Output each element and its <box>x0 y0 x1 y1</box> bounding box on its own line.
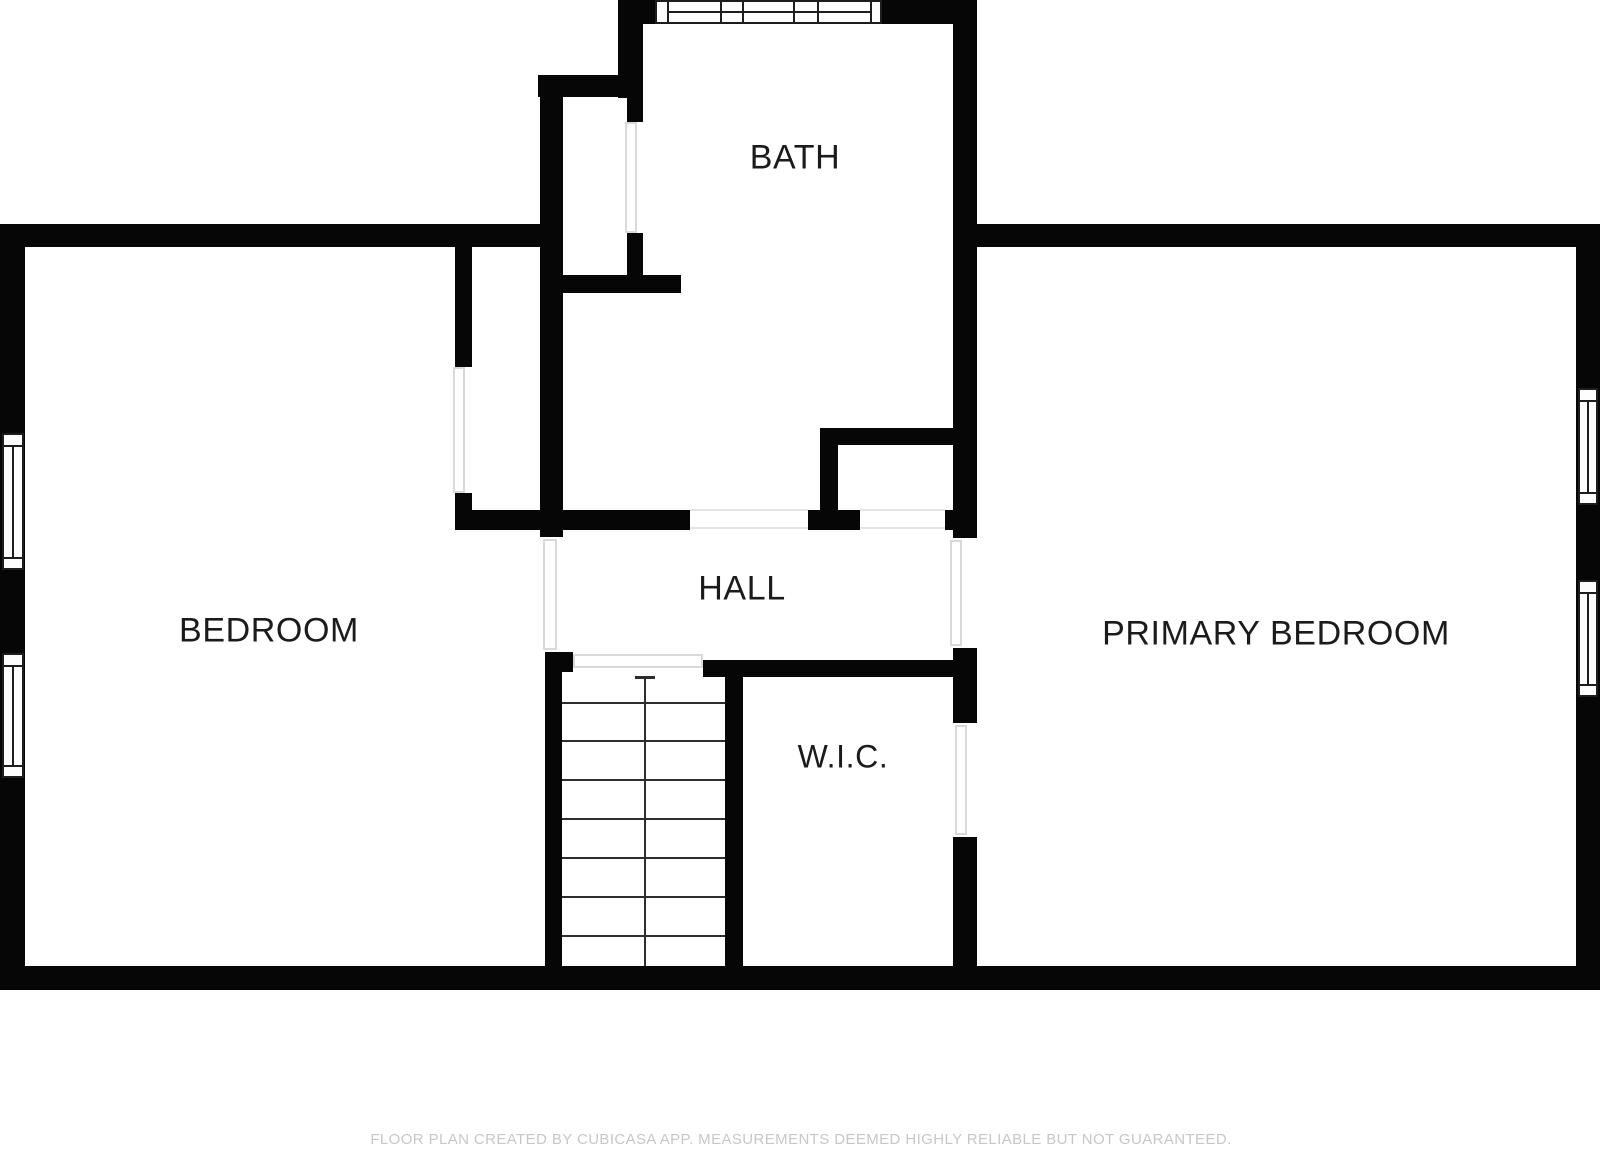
wall-segment <box>457 510 690 530</box>
hall-outline-line <box>690 509 808 511</box>
room-label-primary-bedroom: PRIMARY BEDROOM <box>1102 615 1450 654</box>
stair-center-line <box>644 677 646 966</box>
door-opening <box>950 540 962 646</box>
wall-segment <box>953 0 977 538</box>
room-label-hall: HALL <box>698 570 785 609</box>
wall-segment <box>0 966 1600 990</box>
wall-segment <box>545 652 562 966</box>
wall-segment <box>725 660 743 966</box>
door-opening <box>573 654 703 668</box>
door-opening <box>625 122 637 233</box>
door-opening <box>543 539 557 650</box>
wall-segment <box>953 837 977 988</box>
wall-segment <box>627 97 643 122</box>
wall-segment <box>808 510 860 530</box>
hall-outline-line <box>860 509 945 511</box>
window-center-line <box>1587 400 1589 492</box>
wall-segment <box>0 224 557 247</box>
wall-segment <box>540 75 563 537</box>
footer-disclaimer: FLOOR PLAN CREATED BY CUBICASA APP. MEAS… <box>370 1131 1231 1148</box>
room-label-bath: BATH <box>750 139 841 178</box>
wall-segment <box>545 275 681 293</box>
stair-entry-marker <box>635 676 655 679</box>
floorplan-canvas: BATH BEDROOM HALL PRIMARY BEDROOM W.I.C.… <box>0 0 1600 1152</box>
window-frame-line <box>4 765 22 767</box>
window-center-line <box>12 665 14 765</box>
door-opening <box>453 367 465 493</box>
wall-segment <box>838 428 955 445</box>
hall-outline-line <box>690 527 808 529</box>
door-opening <box>955 725 967 835</box>
window-frame-line <box>870 2 872 22</box>
hall-outline-line <box>860 527 945 529</box>
window-center-line <box>667 11 870 13</box>
window-center-line <box>12 445 14 557</box>
wall-segment <box>820 428 838 510</box>
room-label-wic: W.I.C. <box>798 739 889 776</box>
wall-segment <box>455 247 472 367</box>
wall-segment <box>973 224 1600 247</box>
wall-segment <box>945 510 977 530</box>
room-label-bedroom: BEDROOM <box>179 612 359 651</box>
window-frame-line <box>1580 684 1596 686</box>
wall-segment <box>953 648 977 723</box>
window-frame-line <box>4 557 22 559</box>
window-frame-line <box>1580 492 1596 494</box>
wall-segment <box>0 224 25 988</box>
window-center-line <box>1587 592 1589 684</box>
wall-segment <box>703 660 975 677</box>
